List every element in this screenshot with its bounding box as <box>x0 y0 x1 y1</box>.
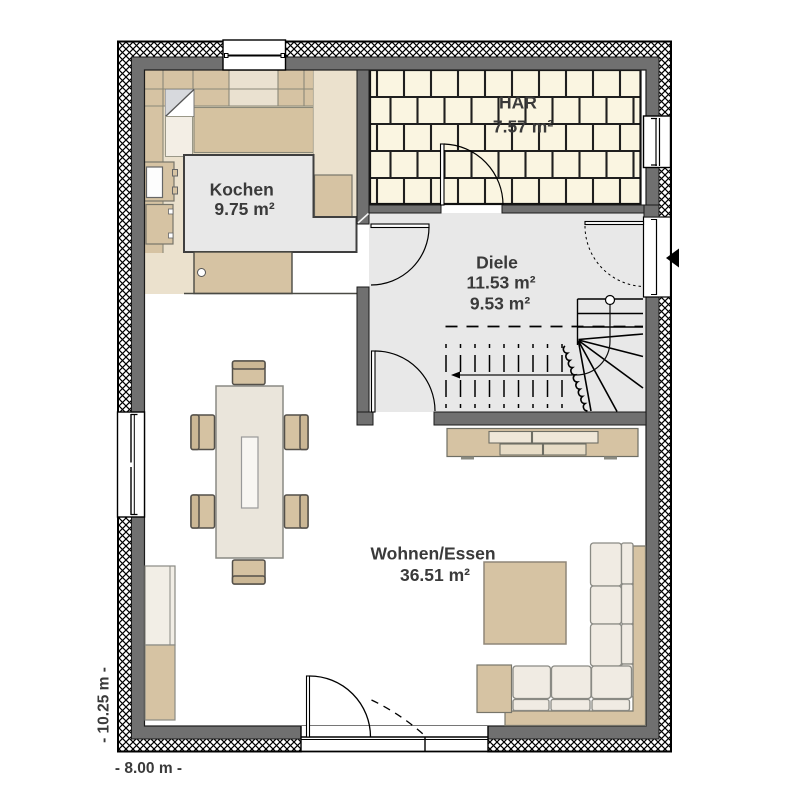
svg-text:36.51 m²: 36.51 m² <box>400 565 470 585</box>
svg-text:Wohnen/Essen: Wohnen/Essen <box>370 544 495 564</box>
svg-text:11.53 m²: 11.53 m² <box>466 273 535 293</box>
svg-text:Diele: Diele <box>476 253 518 273</box>
svg-text:HAR: HAR <box>499 93 537 113</box>
svg-text:9.53 m²: 9.53 m² <box>470 294 530 314</box>
svg-text:- 10.25 m -: - 10.25 m - <box>96 667 113 743</box>
svg-text:9.75 m²: 9.75 m² <box>214 199 274 219</box>
svg-text:- 8.00 m -: - 8.00 m - <box>115 760 182 777</box>
svg-text:Kochen: Kochen <box>210 180 274 200</box>
svg-text:7.57 m²: 7.57 m² <box>493 117 553 137</box>
